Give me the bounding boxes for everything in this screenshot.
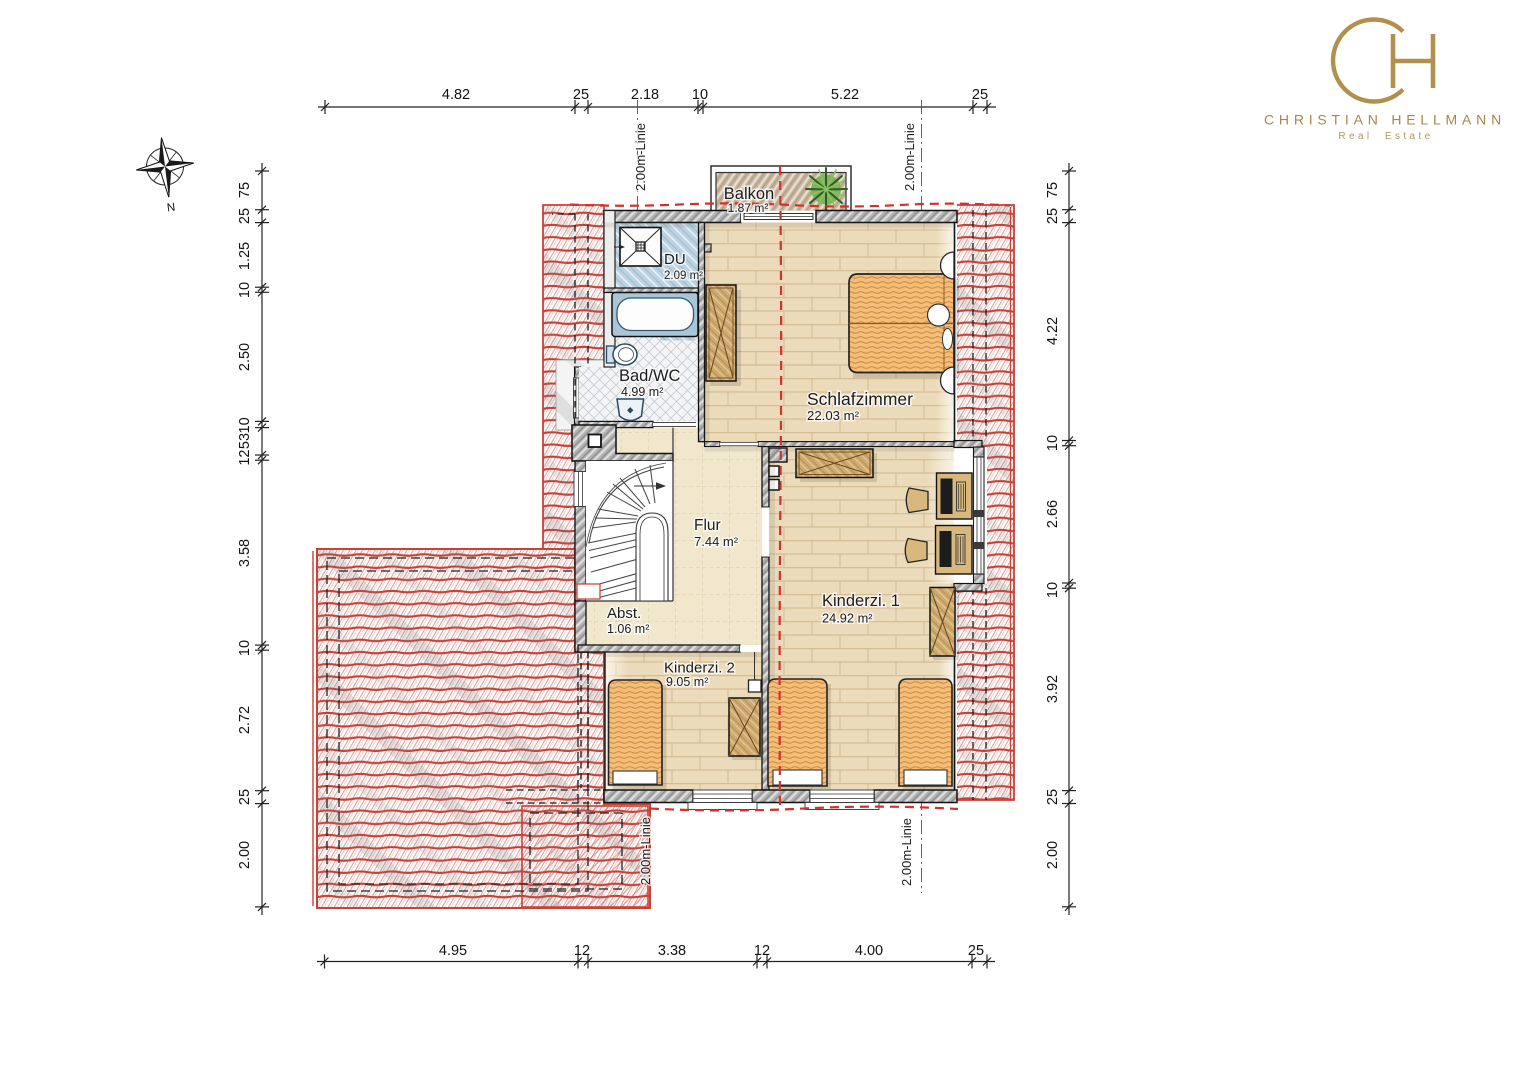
svg-text:75: 75 bbox=[237, 182, 253, 198]
svg-text:25: 25 bbox=[573, 87, 589, 103]
svg-text:2.00m-Linie: 2.00m-Linie bbox=[633, 123, 648, 191]
svg-text:4.00: 4.00 bbox=[855, 943, 883, 959]
svg-text:4.82: 4.82 bbox=[442, 87, 470, 103]
svg-text:2.00m-Linie: 2.00m-Linie bbox=[638, 817, 653, 885]
svg-text:4.95: 4.95 bbox=[439, 943, 467, 959]
svg-text:53: 53 bbox=[237, 433, 253, 449]
svg-text:Bad/WC: Bad/WC bbox=[619, 367, 681, 385]
svg-text:12: 12 bbox=[237, 450, 253, 466]
svg-text:25: 25 bbox=[1045, 789, 1061, 805]
svg-text:2.72: 2.72 bbox=[237, 706, 253, 734]
svg-text:10: 10 bbox=[1045, 435, 1061, 451]
svg-text:10: 10 bbox=[692, 87, 708, 103]
svg-text:10: 10 bbox=[237, 282, 253, 298]
svg-text:1.25: 1.25 bbox=[237, 242, 253, 270]
svg-text:4.22: 4.22 bbox=[1045, 317, 1061, 345]
svg-text:25: 25 bbox=[1045, 208, 1061, 224]
svg-text:25: 25 bbox=[237, 789, 253, 805]
svg-text:10: 10 bbox=[1045, 582, 1061, 598]
svg-text:24.92 m²: 24.92 m² bbox=[822, 611, 873, 626]
svg-text:10: 10 bbox=[237, 640, 253, 656]
svg-text:Kinderzi. 2: Kinderzi. 2 bbox=[664, 660, 735, 677]
svg-text:Schlafzimmer: Schlafzimmer bbox=[807, 389, 913, 409]
svg-text:1.06 m²: 1.06 m² bbox=[607, 622, 649, 636]
svg-text:2.00: 2.00 bbox=[1045, 841, 1061, 869]
svg-text:DU: DU bbox=[664, 251, 686, 268]
svg-text:5.22: 5.22 bbox=[831, 87, 859, 103]
svg-text:22.03 m²: 22.03 m² bbox=[807, 408, 860, 423]
svg-text:7.44 m²: 7.44 m² bbox=[694, 534, 739, 549]
svg-text:Flur: Flur bbox=[694, 517, 721, 534]
svg-text:25: 25 bbox=[972, 87, 988, 103]
svg-text:4.99 m²: 4.99 m² bbox=[621, 385, 663, 399]
svg-text:2.18: 2.18 bbox=[631, 87, 659, 103]
svg-text:Kinderzi. 1: Kinderzi. 1 bbox=[822, 592, 900, 610]
svg-text:10: 10 bbox=[237, 417, 253, 433]
svg-text:CHRISTIAN HELLMANN: CHRISTIAN HELLMANN bbox=[1264, 112, 1506, 128]
svg-text:3.58: 3.58 bbox=[237, 539, 253, 567]
svg-text:9.05 m²: 9.05 m² bbox=[666, 675, 708, 689]
svg-text:Abst.: Abst. bbox=[607, 605, 641, 622]
svg-text:N: N bbox=[166, 202, 176, 215]
svg-text:3.92: 3.92 bbox=[1045, 675, 1061, 703]
svg-text:2.00m-Linie: 2.00m-Linie bbox=[899, 818, 914, 886]
svg-text:2.66: 2.66 bbox=[1045, 500, 1061, 528]
svg-text:2.00m-Linie: 2.00m-Linie bbox=[902, 123, 917, 191]
svg-text:2.09 m²: 2.09 m² bbox=[664, 270, 703, 282]
svg-text:2.50: 2.50 bbox=[237, 343, 253, 371]
svg-text:25: 25 bbox=[237, 208, 253, 224]
svg-text:Real Estate: Real Estate bbox=[1338, 131, 1433, 142]
svg-text:75: 75 bbox=[1045, 182, 1061, 198]
svg-text:3.38: 3.38 bbox=[658, 943, 686, 959]
svg-text:25: 25 bbox=[968, 943, 984, 959]
svg-text:12: 12 bbox=[754, 943, 770, 959]
svg-text:12: 12 bbox=[574, 943, 590, 959]
svg-text:2.00: 2.00 bbox=[237, 841, 253, 869]
svg-text:1.87 m²: 1.87 m² bbox=[728, 201, 769, 215]
